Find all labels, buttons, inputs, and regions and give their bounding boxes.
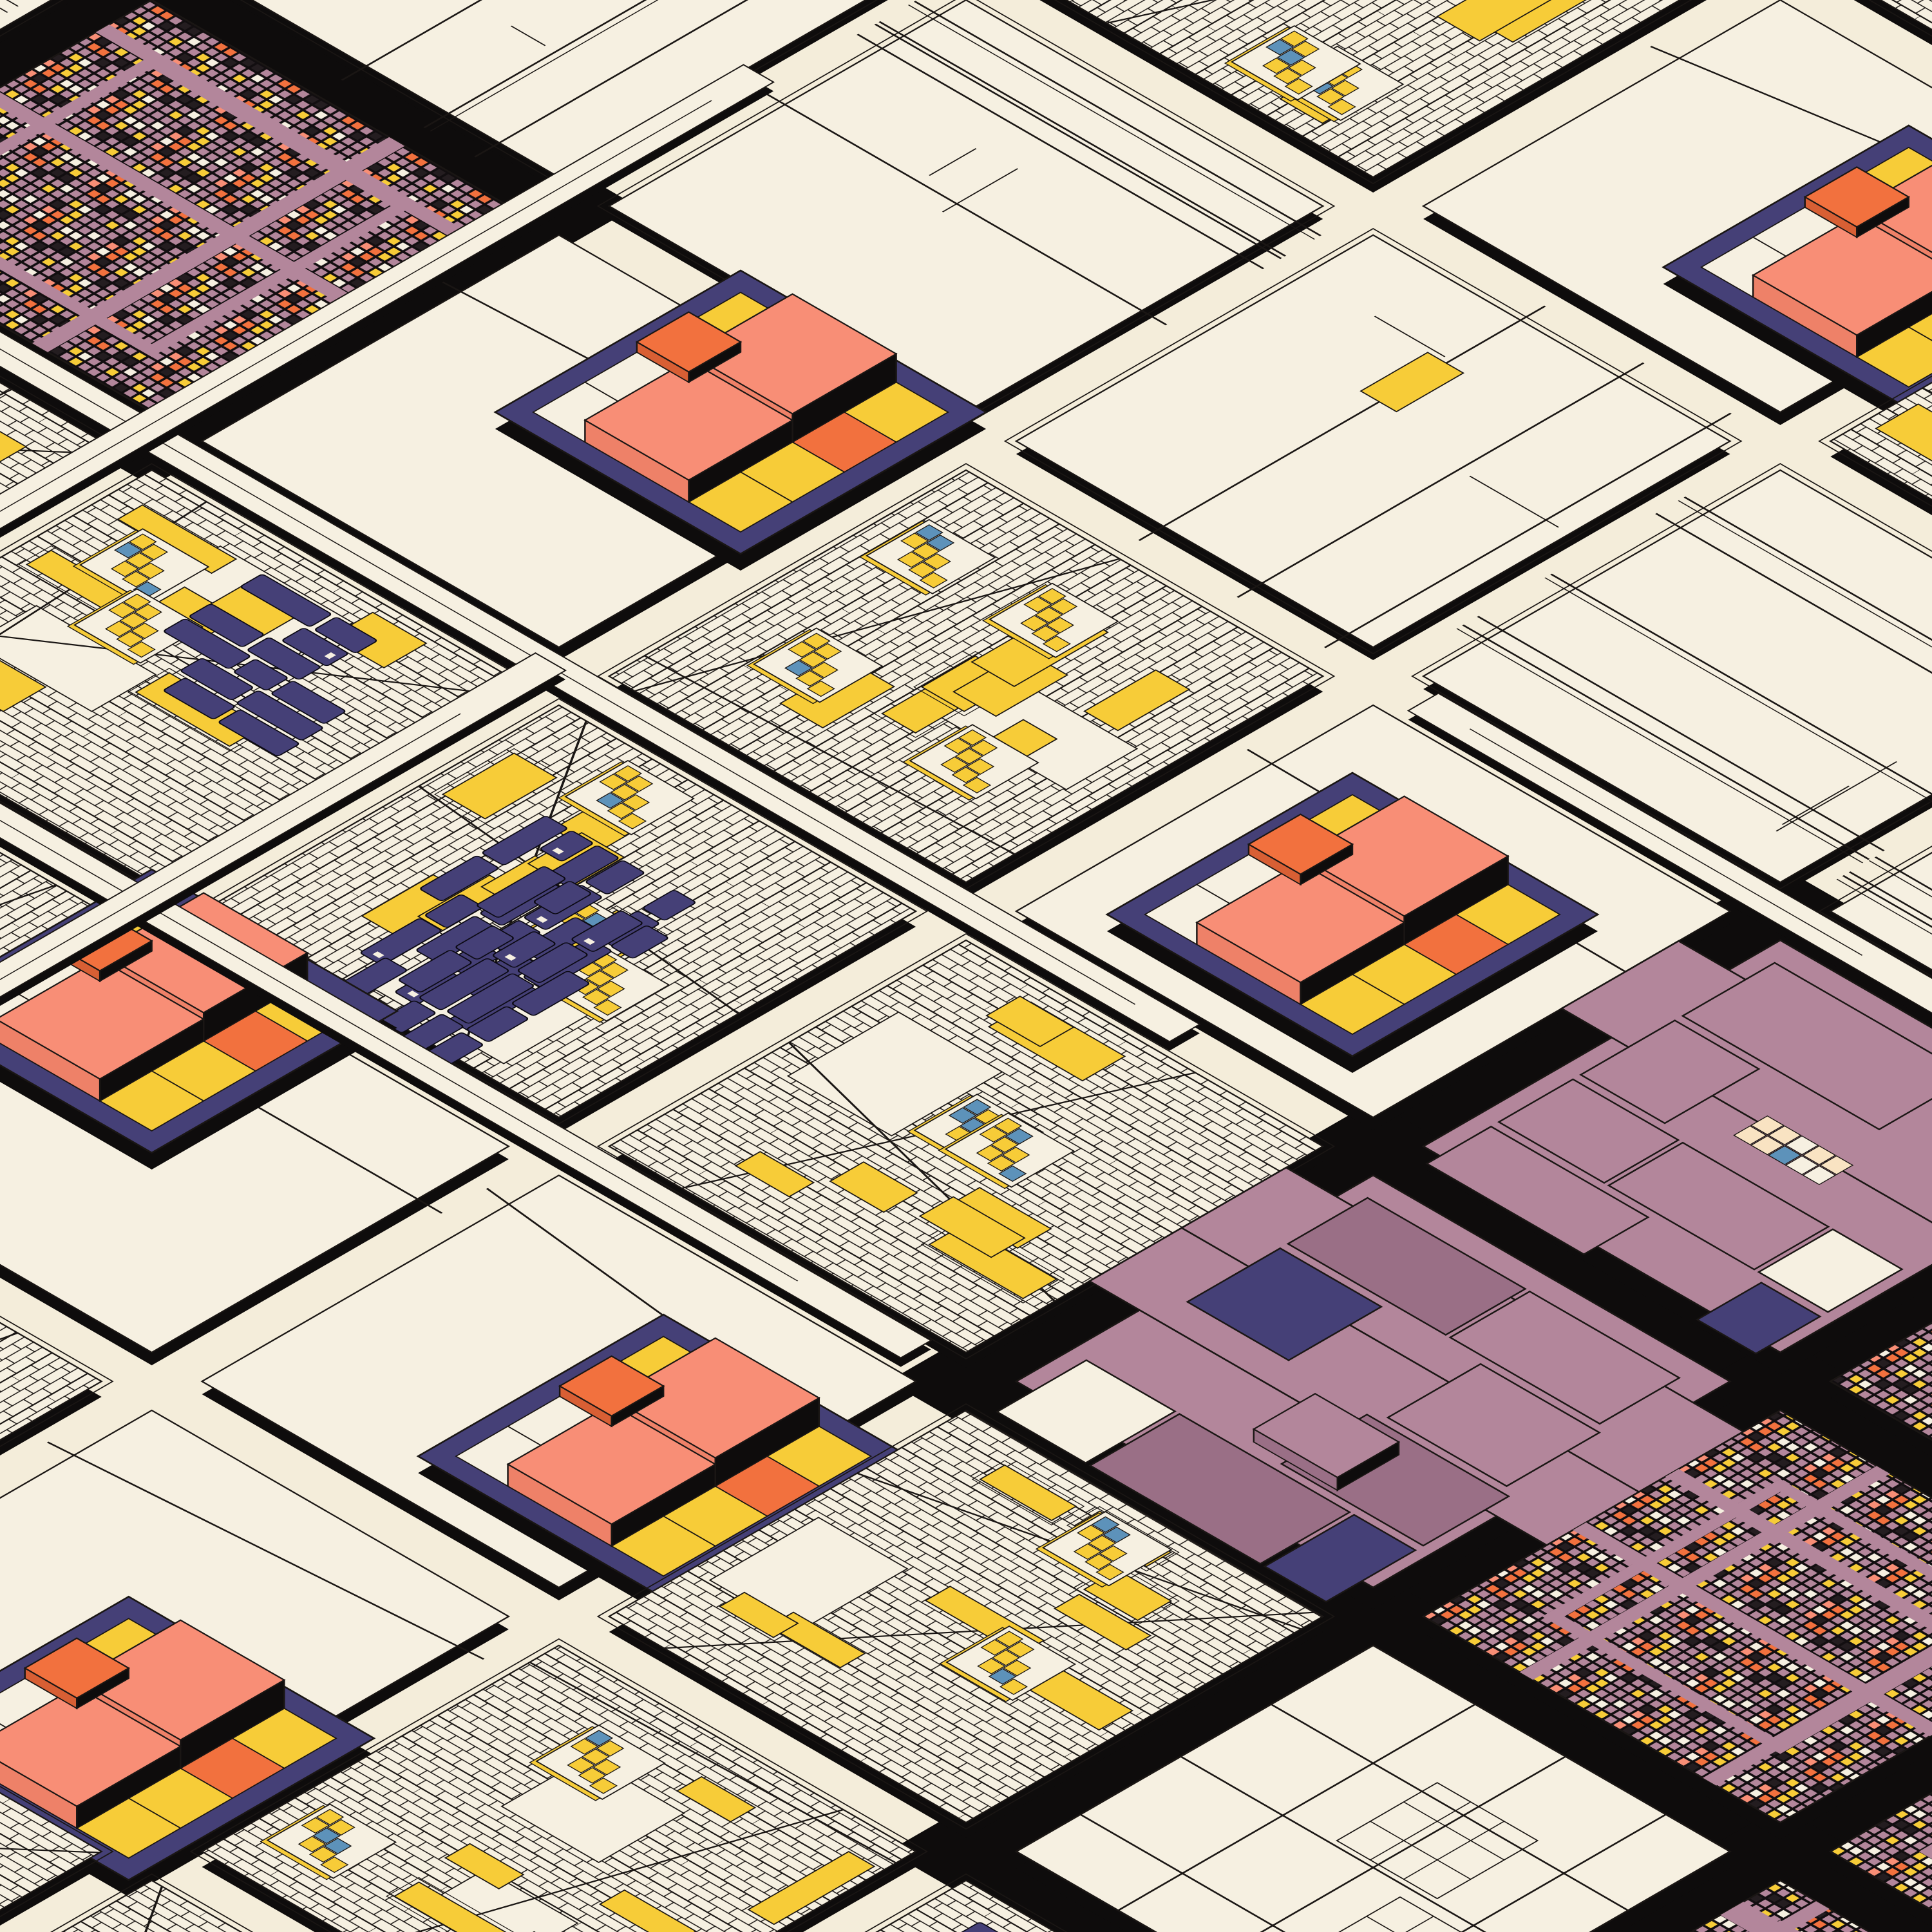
artwork-frame	[0, 0, 1932, 1932]
isometric-chip-city-artwork	[0, 0, 1932, 1932]
